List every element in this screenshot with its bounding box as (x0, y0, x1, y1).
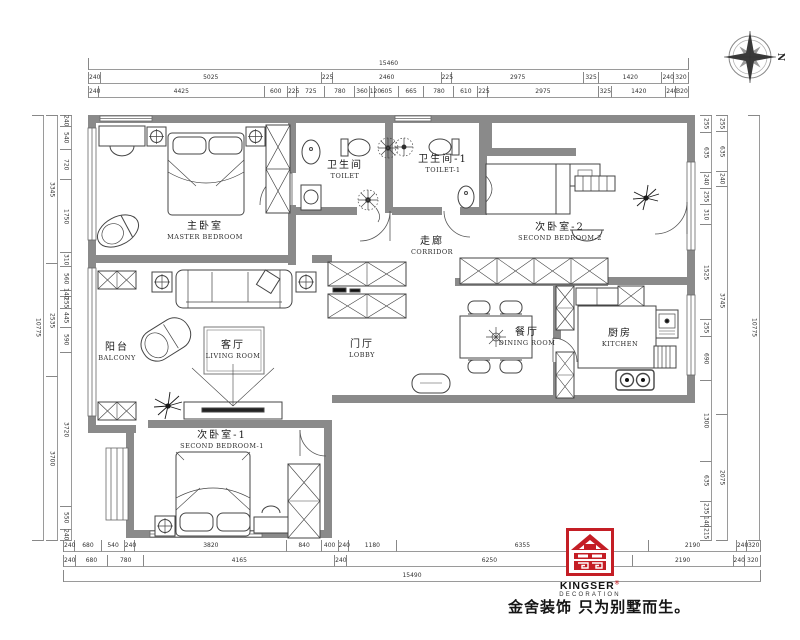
dining-table-icon (460, 301, 532, 373)
dimension-value: 255 (60, 297, 72, 308)
dimension-value: 1420 (599, 72, 662, 84)
shoe-cabinet-icon (412, 374, 450, 393)
dim-right-inner: 2556352402553101525255690130063523514021… (700, 115, 712, 541)
radiator-icon (654, 346, 676, 368)
brand-tagline: 金舍装饰 只为别墅而生。 (508, 596, 690, 617)
dimension-value: 255 (716, 116, 728, 132)
dimension-value: 635 (716, 132, 728, 171)
rug-icon (204, 327, 264, 374)
dim-left-inner: 2405407201750310560140255445590372055024… (60, 115, 72, 541)
dimension-value: 540 (102, 540, 124, 552)
dimension-value: 240 (716, 172, 728, 188)
plant-icon (633, 185, 659, 210)
bed2-icon (486, 164, 570, 214)
dim-top-overall: 15460 (88, 58, 689, 70)
dimension-value: 680 (76, 555, 108, 567)
dimension-value: 445 (60, 309, 72, 328)
dimension-value: 360 (355, 86, 369, 98)
dimension-value: 240 (64, 555, 76, 567)
floorplan-sheet: 主卧室MASTER BEDROOM 卫生间TOILET 卫生间-1TOILET-… (0, 0, 800, 640)
plant-icon (154, 392, 182, 419)
nightstand-lamp-icon (147, 127, 166, 146)
nightstand-lamp-icon (155, 516, 175, 536)
dim-top-row2: 2405025225246022529753251420240320 (88, 72, 689, 84)
dimension-value: 255 (700, 189, 712, 206)
washing-machine-icon (301, 185, 321, 210)
dimension-value: 140 (700, 517, 712, 527)
dimension-value: 320 (747, 540, 761, 552)
dimension-value: 240 (60, 116, 72, 127)
dimension-value: 320 (674, 72, 689, 84)
dimension-value: 780 (325, 86, 355, 98)
bench-icon (570, 230, 604, 241)
dimension-value: 550 (60, 507, 72, 531)
dimension-value: 325 (599, 86, 612, 98)
washbasin-icon (458, 186, 474, 208)
dimension-value: 240 (64, 540, 75, 552)
dimension-value: 240 (60, 530, 72, 541)
dimension-value: 215 (700, 527, 712, 541)
dimension-value: 3720 (60, 353, 72, 506)
dimension-value: 255 (700, 116, 712, 133)
dimension-value: 10775 (748, 116, 760, 541)
dimension-value: 780 (108, 555, 145, 567)
wardrobe-icon (288, 464, 320, 538)
dimension-value: 225 (322, 72, 333, 84)
shower-head-icon (395, 138, 413, 156)
dimension-value: 255 (700, 320, 712, 337)
dimension-value: 15460 (89, 58, 689, 70)
balcony-cabinet-icon (98, 271, 136, 289)
dimension-value: 320 (676, 86, 689, 98)
entry-steps-icon (575, 176, 615, 191)
dim-left-mid: 334525353700 (46, 115, 58, 541)
stove-icon (616, 370, 654, 390)
dimension-value: 610 (454, 86, 478, 98)
dimension-value: 240 (89, 72, 101, 84)
dimension-value: 1420 (612, 86, 666, 98)
dimension-value: 240 (734, 555, 746, 567)
sofa-icon (176, 270, 292, 308)
ottoman-icon (254, 506, 290, 533)
logo-wordmark: KINGSER (560, 580, 615, 592)
dimension-value: 240 (89, 86, 99, 98)
dimension-value: 590 (60, 328, 72, 353)
kingser-logo-emblem (566, 528, 614, 576)
tv-console-icon (184, 364, 282, 419)
dimension-value: 540 (60, 127, 72, 150)
dimension-value: 2535 (46, 264, 58, 377)
dim-bottom-row2: 240680780416524062502190240320 (63, 555, 761, 567)
dimension-value: 3700 (46, 377, 58, 541)
dimension-value: 680 (75, 540, 103, 552)
dimension-value: 240 (666, 86, 676, 98)
dimension-value: 3820 (135, 540, 287, 552)
centerpiece-flower-icon (486, 327, 506, 347)
dim-right-overall: 10775 (748, 115, 760, 541)
dimension-value: 310 (700, 205, 712, 225)
balcony-cabinet-icon (98, 402, 136, 420)
dimension-value: 1525 (700, 225, 712, 320)
dimension-value: 240 (737, 540, 748, 552)
master-bed-icon (168, 133, 244, 215)
dimension-value: 240 (335, 555, 347, 567)
dressing-table-icon (99, 126, 145, 156)
wardrobe-icon (266, 125, 290, 213)
dimension-value: 225 (442, 72, 453, 84)
dimension-value: 780 (424, 86, 454, 98)
dimension-value: 635 (700, 462, 712, 502)
washbasin-icon (302, 140, 320, 164)
dim-top-row3: 2404425600225725780360120605665780610225… (88, 86, 689, 98)
dimension-value: 725 (297, 86, 325, 98)
dimension-value: 1180 (349, 540, 397, 552)
dimension-value: 2460 (333, 72, 442, 84)
dimension-value: 240 (662, 72, 674, 84)
bed1-icon (176, 452, 250, 536)
dimension-value: 690 (700, 337, 712, 381)
dimension-value: 310 (60, 253, 72, 267)
side-table-lamp-icon (152, 272, 172, 292)
dimension-value: 2975 (488, 86, 600, 98)
shower-head-icon (358, 190, 380, 222)
dimension-value: 400 (322, 540, 339, 552)
dimension-value: 4165 (144, 555, 335, 567)
logo-house-icon (569, 531, 611, 573)
nightstand-lamp-icon (246, 127, 265, 146)
dimension-value: 3345 (46, 116, 58, 264)
side-table-lamp-icon (296, 272, 316, 292)
dimension-value: 665 (399, 86, 425, 98)
dimension-value: 2190 (633, 555, 734, 567)
shower-head-icon (378, 138, 398, 158)
kitchen-sink-icon (656, 310, 678, 338)
dim-bottom-overall: 15490 (63, 570, 761, 582)
compass-north-label: N (775, 53, 785, 61)
registered-mark: ® (615, 581, 620, 587)
dimension-value: 720 (60, 150, 72, 180)
dimension-value: 225 (288, 86, 297, 98)
dimension-value: 2975 (452, 72, 583, 84)
dimension-value: 840 (287, 540, 321, 552)
compass-icon (724, 31, 776, 83)
hallway-cabinet-icon (328, 262, 406, 318)
dim-bottom-row1: 2406805402403820840400240118063552190240… (63, 540, 761, 552)
kitchen-worktop-icon (578, 306, 656, 368)
dimension-value: 325 (584, 72, 599, 84)
dimension-value: 4425 (99, 86, 265, 98)
dim-right-mid: 25563524037452075 (716, 115, 728, 541)
dimension-value: 320 (745, 555, 761, 567)
dimension-value: 1300 (700, 381, 712, 462)
dimension-value: 635 (700, 133, 712, 173)
dimension-value: 2075 (716, 415, 728, 541)
chaise-lounge-icon (135, 312, 196, 367)
dimension-value: 5025 (101, 72, 322, 84)
dimension-value: 240 (700, 173, 712, 189)
dimension-value: 240 (339, 540, 350, 552)
dimension-value: 2190 (649, 540, 737, 552)
storage-cabinet-row-icon (460, 258, 608, 284)
dimension-value: 3745 (716, 187, 728, 414)
dimension-value: 240 (125, 540, 136, 552)
toilet-wc-icon (429, 139, 459, 155)
dim-left-overall: 10775 (32, 115, 44, 541)
dimension-value: 600 (265, 86, 288, 98)
dimension-value: 225 (478, 86, 487, 98)
armchair-icon (92, 208, 144, 253)
dimension-value: 605 (375, 86, 399, 98)
dimension-value: 10775 (32, 116, 44, 541)
toilet-wc-icon (341, 139, 370, 156)
dimension-value: 1750 (60, 180, 72, 253)
dimension-value: 15490 (64, 570, 761, 582)
